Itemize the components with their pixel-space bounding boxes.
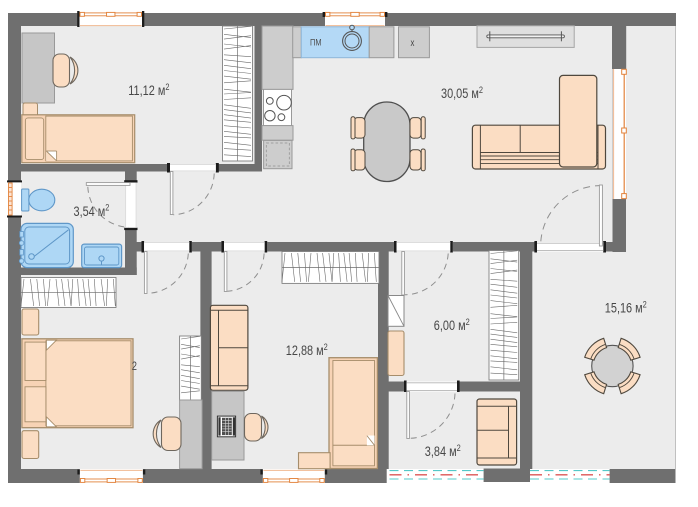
svg-text:3,54 м2: 3,54 м2 — [74, 202, 110, 219]
svg-text:3,84 м2: 3,84 м2 — [425, 442, 461, 459]
svg-text:15,16 м2: 15,16 м2 — [605, 298, 647, 315]
svg-text:2: 2 — [132, 360, 137, 373]
svg-text:30,05 м2: 30,05 м2 — [441, 84, 483, 101]
svg-text:11,12 м2: 11,12 м2 — [128, 81, 169, 98]
svg-text:6,00 м2: 6,00 м2 — [434, 316, 470, 333]
svg-text:x: x — [411, 37, 415, 48]
svg-text:ПМ: ПМ — [310, 37, 321, 48]
svg-text:12,88 м2: 12,88 м2 — [286, 341, 328, 358]
